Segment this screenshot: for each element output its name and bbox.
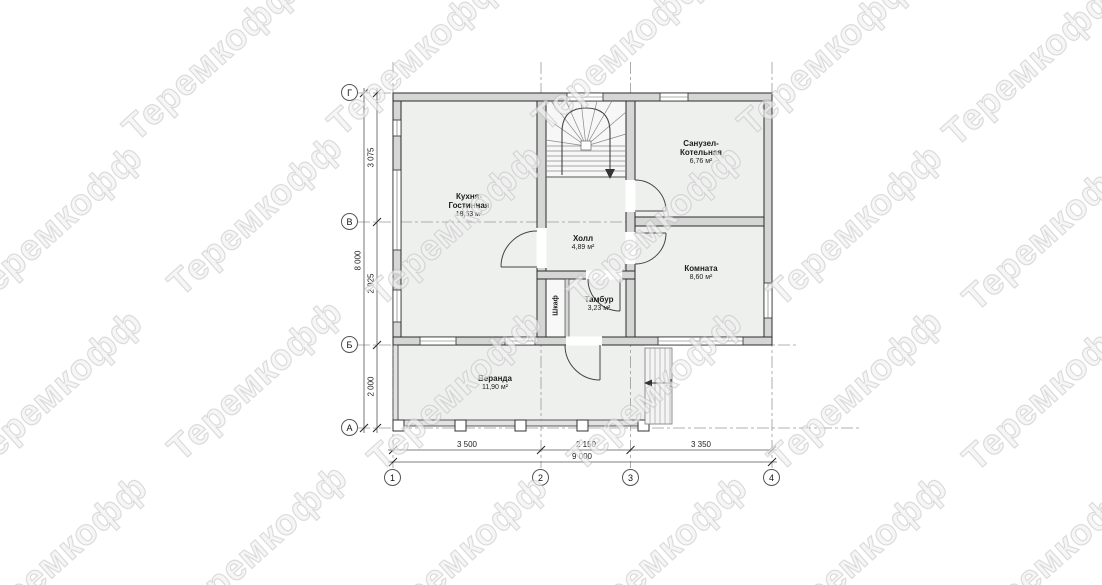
entry-steps — [644, 348, 672, 424]
dim-left-total: 8 000 — [354, 231, 363, 291]
room-name: Кухня- Гостинная — [419, 192, 519, 210]
room-area: 11,90 м² — [445, 384, 545, 391]
axis-bubble-2: 2 — [532, 469, 549, 486]
dim-bottom-seg2: 2 150 — [556, 440, 616, 449]
dim-left-seg2: 2 925 — [367, 254, 376, 314]
room-floor — [635, 226, 764, 337]
floor-plan-drawing — [0, 0, 1102, 585]
axis-bubble-3: 3 — [622, 469, 639, 486]
stair-newel — [581, 141, 591, 150]
axis-bubble-b: Б — [341, 336, 358, 353]
dim-bottom-seg3: 3 350 — [671, 440, 731, 449]
room-name: Комната — [651, 264, 751, 273]
kitchen-floor — [401, 101, 537, 337]
room-label-veranda: Веранда 11,90 м² — [445, 374, 545, 391]
room-area: 6,76 м² — [651, 158, 751, 165]
stairwell-floor — [546, 101, 626, 177]
room-label-hall: Холл 4,89 м² — [533, 234, 633, 251]
room-name: Веранда — [445, 374, 545, 383]
room-label-closet: Шкаф — [553, 291, 560, 321]
room-label-tambour: Тамбур 3,23 м² — [549, 295, 649, 312]
dim-left-seg3: 2 000 — [367, 357, 376, 417]
axis-bubble-a: А — [341, 419, 358, 436]
room-area: 3,23 м² — [549, 305, 649, 312]
room-name: Холл — [533, 234, 633, 243]
axis-bubble-4: 4 — [763, 469, 780, 486]
axis-bubble-g: Г — [341, 84, 358, 101]
wall-boiler-room — [635, 217, 764, 226]
room-name: Санузел- Котельная — [651, 139, 751, 157]
axis-bubble-v: В — [341, 213, 358, 230]
hall-floor — [546, 177, 626, 271]
axis-bubble-1: 1 — [384, 469, 401, 486]
room-name: Тамбур — [549, 295, 649, 304]
room-label-kitchen: Кухня- Гостинная 18,53 м² — [419, 192, 519, 218]
room-label-boiler: Санузел- Котельная 6,76 м² — [651, 139, 751, 165]
floor-plan-page: Кухня- Гостинная 18,53 м² Холл 4,89 м² С… — [0, 0, 1102, 585]
dim-left-seg1: 3 075 — [367, 128, 376, 188]
room-label-room: Комната 8,60 м² — [651, 264, 751, 281]
wall-axis2 — [537, 101, 546, 337]
room-area: 8,60 м² — [651, 274, 751, 281]
room-area: 4,89 м² — [533, 244, 633, 251]
dim-bottom-seg1: 3 500 — [437, 440, 497, 449]
dim-bottom-total: 9 000 — [552, 452, 612, 461]
room-area: 18,53 м² — [419, 211, 519, 218]
